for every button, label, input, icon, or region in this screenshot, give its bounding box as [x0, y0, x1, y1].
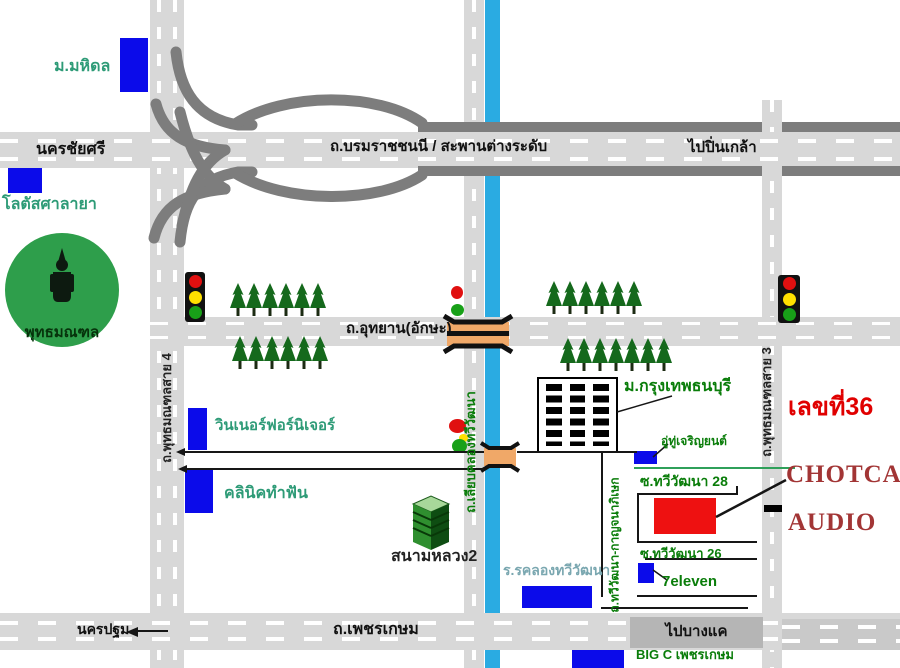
sai3-label: ถ.พุทธมณฑลสาย 3: [760, 347, 774, 457]
house-number-label: เลขที่36: [788, 394, 873, 422]
audio-label: AUDIO: [788, 509, 876, 537]
bkk-thonburi-u-label: ม.กรุงเทพธนบุรี: [624, 378, 731, 396]
lotus-salaya-label: โลตัสศาลายา: [2, 196, 97, 214]
chotcar-label: CHOTCAR: [786, 461, 900, 489]
utthayan-label: ถ.อุทยาน(อักษะ): [346, 321, 452, 338]
thawi-kanchana-label: ถ.ทวีวัฒนา-กาญจนาภิเษก: [608, 477, 621, 612]
dental-clinic-label: คลินิคทำฟัน: [224, 485, 308, 503]
borommaratchachonnani-label: ถ.บรมราชชนนี / สะพานต่างระดับ: [330, 139, 547, 156]
garage-label: อู่ทู่เจริญยนต์: [661, 435, 727, 448]
soi28-label: ซ.ทวีวัฒนา 28: [640, 474, 728, 489]
liap-khlong-label: ถ.เลียบคลองทวีวัฒนา: [464, 391, 478, 513]
chotcar-audio-direction-map: พุทธมณฑล: [0, 0, 900, 668]
nakhon-chai-si-label: นครชัยศรี: [36, 141, 105, 159]
khlong-school-label: ร.รคลองทวีวัฒนา: [503, 563, 610, 578]
soi26-label: ซ.ทวีวัฒนา 26: [640, 547, 722, 561]
sanam-luang2-label: สนามหลวง2: [391, 548, 477, 566]
winner-furniture-label: วินเนอร์ฟอร์นิเจอร์: [215, 418, 335, 435]
nakhon-pathom-label: นครปฐม: [77, 622, 129, 637]
mahidol-label: ม.มหิดล: [54, 58, 110, 76]
to-bang-khae-box: ไปบางแค: [630, 617, 763, 648]
to-bang-khae-label: ไปบางแค: [665, 624, 727, 641]
sai4-label: ถ.พุทธมณฑลสาย 4: [160, 353, 174, 463]
phetkasem-label: ถ.เพชรเกษม: [333, 621, 419, 639]
seven-eleven-label: 7eleven: [662, 574, 717, 591]
to-pinklao-label: ไปปิ่นเกล้า: [688, 140, 757, 157]
big-c-label: BIG C เพชรเกษม: [636, 648, 734, 662]
